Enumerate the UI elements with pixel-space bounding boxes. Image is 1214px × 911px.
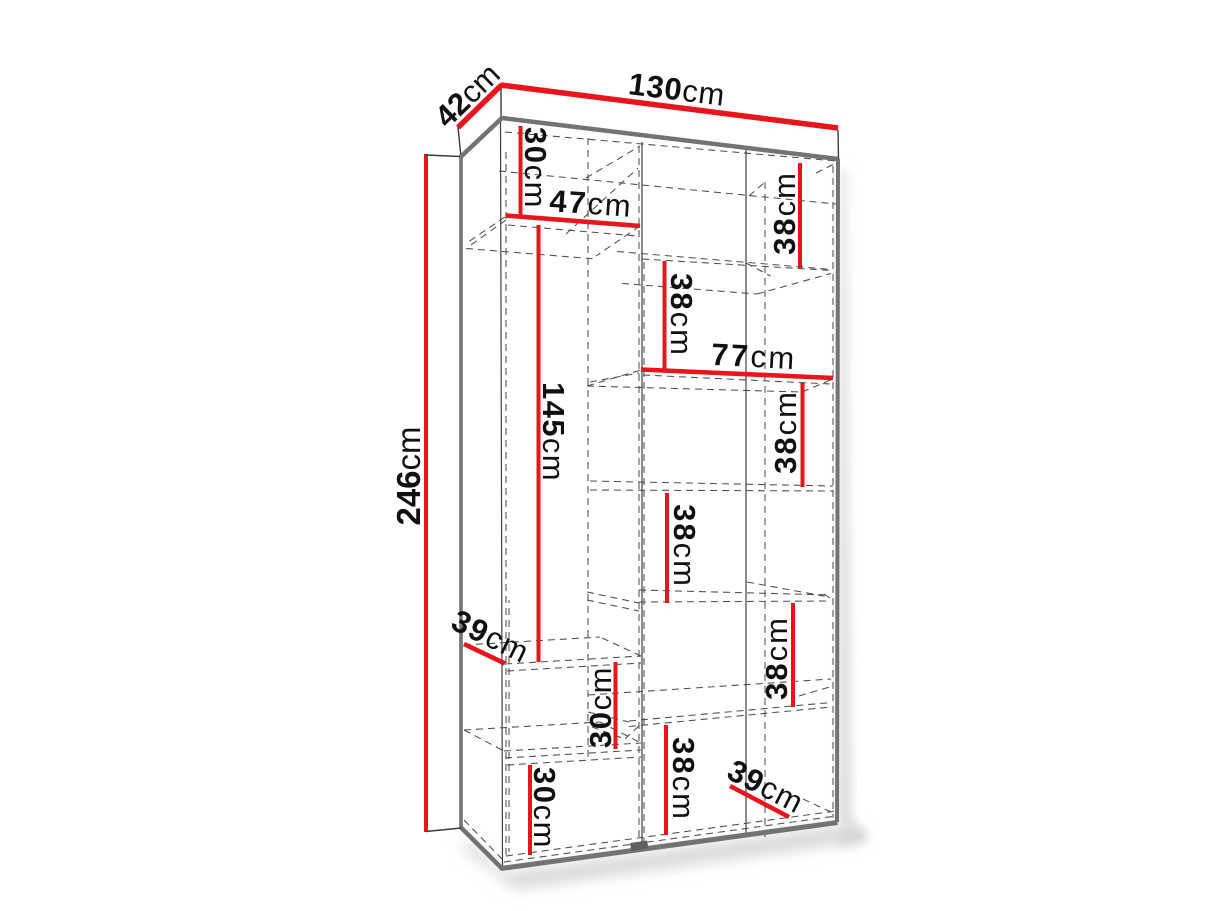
- svg-text:38cm: 38cm: [767, 171, 802, 255]
- svg-text:38cm: 38cm: [768, 390, 803, 474]
- svg-text:47cm: 47cm: [548, 183, 633, 224]
- svg-text:30cm: 30cm: [527, 767, 562, 849]
- svg-text:246cm: 246cm: [390, 426, 427, 525]
- svg-text:38cm: 38cm: [759, 616, 794, 700]
- svg-text:145cm: 145cm: [536, 382, 571, 482]
- svg-text:30cm: 30cm: [518, 127, 553, 209]
- svg-text:130cm: 130cm: [627, 66, 728, 113]
- svg-text:38cm: 38cm: [664, 273, 699, 357]
- svg-text:38cm: 38cm: [667, 504, 702, 588]
- svg-text:30cm: 30cm: [583, 666, 618, 748]
- svg-text:39cm: 39cm: [722, 753, 810, 821]
- svg-text:77cm: 77cm: [710, 337, 797, 376]
- svg-text:38cm: 38cm: [666, 737, 701, 821]
